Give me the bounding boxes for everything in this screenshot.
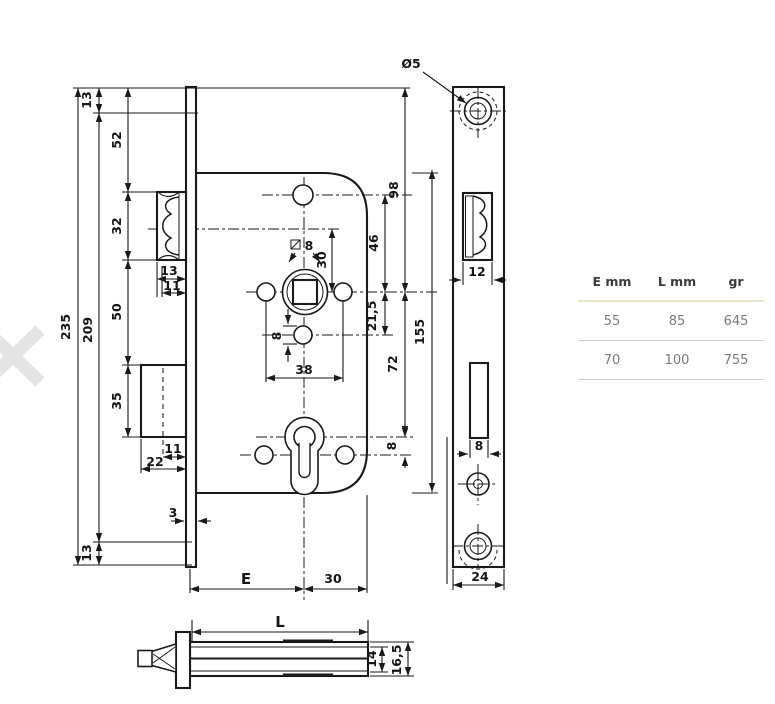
latch-bolt-front xyxy=(157,192,186,260)
dim-label-top-13: 13 xyxy=(79,91,94,108)
cell-gr: 755 xyxy=(708,353,764,368)
cell-l: 100 xyxy=(646,353,708,368)
dim-label-bolt-11: 11 xyxy=(164,441,181,456)
dim-label-209: 209 xyxy=(80,317,95,343)
dim-label-72: 72 xyxy=(385,355,400,372)
lower-small-hole xyxy=(294,326,312,344)
watermark-x xyxy=(0,330,40,382)
dim-label-hole-8: 8 xyxy=(269,332,284,341)
deadbolt-slot xyxy=(470,363,488,438)
dim-label-vert-30: 30 xyxy=(314,251,329,269)
dim-label-square-8: 8 xyxy=(305,238,314,253)
table-row: 70 100 755 xyxy=(578,341,764,380)
cell-l: 85 xyxy=(646,314,708,329)
dim-label-98: 98 xyxy=(386,181,401,198)
dim-label-38: 38 xyxy=(295,362,312,377)
bottom-view xyxy=(138,632,368,688)
dim-label-bottom-30: 30 xyxy=(324,571,342,586)
latch-bolt-side xyxy=(150,644,176,672)
latch-cutout xyxy=(463,193,492,260)
cell-gr: 645 xyxy=(708,314,764,329)
dim-label-155: 155 xyxy=(412,319,427,345)
dim-label-length-L: L xyxy=(275,613,285,631)
dim-label-12: 12 xyxy=(468,264,485,279)
spindle-square-hole xyxy=(293,280,317,304)
dim-label-slot-8: 8 xyxy=(475,438,484,453)
dim-label-52: 52 xyxy=(109,131,124,148)
hub-side-hole-right xyxy=(334,283,352,301)
dim-label-24: 24 xyxy=(471,569,489,584)
faceplate-side-view xyxy=(447,87,506,584)
col-header-l-mm: L mm xyxy=(646,274,708,289)
dim-label-dia-5: Ø5 xyxy=(401,56,420,71)
cell-e: 70 xyxy=(578,353,646,368)
dim-label-235: 235 xyxy=(58,314,73,340)
dim-label-backset-E: E xyxy=(241,570,251,588)
bottom-hole-left xyxy=(255,446,273,464)
col-header-gr: gr xyxy=(708,274,764,289)
cell-e: 55 xyxy=(578,314,646,329)
dim-label-bottom-13: 13 xyxy=(79,544,94,561)
dim-label-bolt-22: 22 xyxy=(146,454,163,469)
dim-label-35: 35 xyxy=(109,392,124,409)
mortise-lock-drawing-page: 13 52 32 235 209 50 35 13 13 11 11 22 3 … xyxy=(0,0,775,704)
dim-label-14: 14 xyxy=(364,650,379,668)
bottom-hole-right xyxy=(336,446,354,464)
hub-side-hole-left xyxy=(257,283,275,301)
col-header-e-mm: E mm xyxy=(578,274,646,289)
dim-label-16-5: 16,5 xyxy=(389,645,404,676)
table-row: 55 85 645 xyxy=(578,302,764,341)
dim-label-32: 32 xyxy=(109,217,124,234)
dim-label-50: 50 xyxy=(109,303,124,321)
spec-table-header: E mm L mm gr xyxy=(578,268,764,302)
top-fixing-hole xyxy=(293,185,313,205)
dim-label-46: 46 xyxy=(366,234,381,252)
faceplate-edge xyxy=(176,632,190,688)
dim-label-latch-11: 11 xyxy=(163,278,180,293)
dim-label-right-8: 8 xyxy=(384,442,399,451)
spec-table: E mm L mm gr 55 85 645 70 100 755 xyxy=(578,268,764,380)
dim-label-plate-3: 3 xyxy=(169,505,178,520)
dim-label-latch-13: 13 xyxy=(160,263,177,278)
dim-label-21-5: 21,5 xyxy=(364,301,379,332)
faceplate-front xyxy=(186,87,196,567)
